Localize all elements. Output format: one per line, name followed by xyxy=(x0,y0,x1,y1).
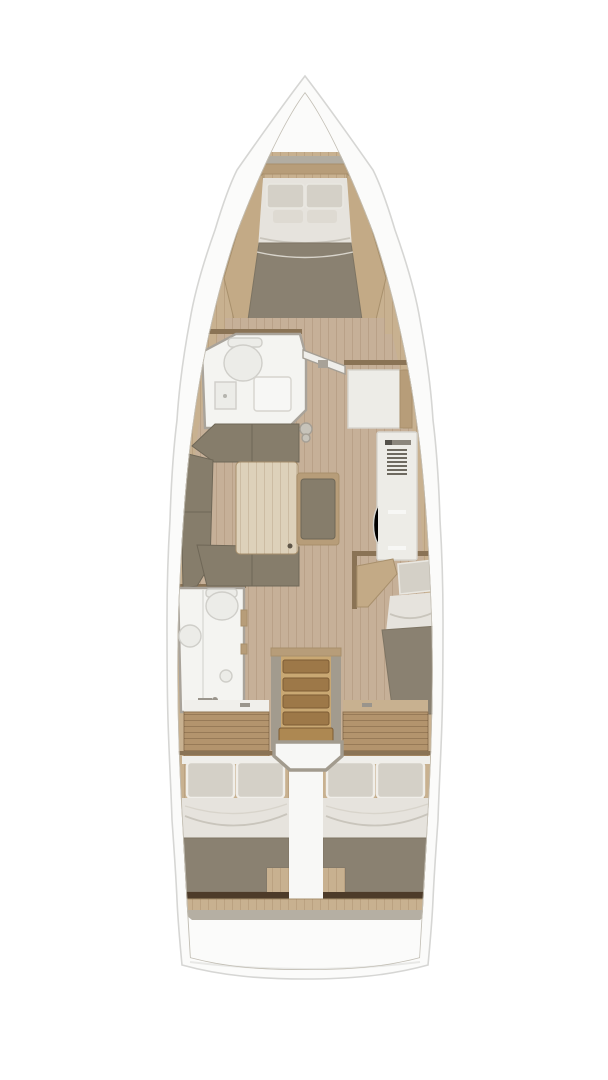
starboard-counter xyxy=(343,700,428,712)
port-notch-texture xyxy=(267,868,289,894)
port-cabinet-slats xyxy=(184,712,269,756)
yacht-floorplan xyxy=(0,0,608,1080)
stair-tread-3 xyxy=(283,695,329,708)
aft-head xyxy=(178,588,247,712)
vberth-small-pillow-right xyxy=(307,210,337,223)
vent-grille xyxy=(387,450,407,474)
wardrobe-unit xyxy=(348,370,412,428)
stair-tread-4 xyxy=(283,712,329,725)
stair-tread-2 xyxy=(283,678,329,691)
aft-head-drain xyxy=(220,670,232,682)
bow-shelf-wood xyxy=(254,164,356,174)
forward-head-door-bracket xyxy=(318,360,328,368)
aft-head-door-jamb-2 xyxy=(241,644,247,654)
starboard-counter-handle xyxy=(362,703,372,707)
port-pillow-1 xyxy=(187,762,234,798)
companionway-stairs xyxy=(271,648,341,750)
starboard-cabinet-slats xyxy=(343,712,428,756)
galley-body xyxy=(377,432,417,560)
port-counter-handle xyxy=(240,703,250,707)
stern xyxy=(178,899,434,920)
salon-table-texture xyxy=(236,462,298,554)
forward-head-sink-drain xyxy=(223,394,227,398)
bench-cushion xyxy=(301,479,335,539)
chart-bulkhead xyxy=(344,360,412,365)
interior xyxy=(150,92,460,970)
port-counter xyxy=(184,700,269,712)
salon-table-fitting xyxy=(288,544,293,549)
deck-fitting-inner xyxy=(302,434,310,442)
galley-unit xyxy=(374,432,418,560)
stair-top-lip xyxy=(271,648,341,656)
port-pillow-2 xyxy=(237,762,284,798)
starboard-pillow-1 xyxy=(327,762,374,798)
vberth-pillow-right xyxy=(306,184,343,208)
mid-cabin-door-jamb xyxy=(352,551,357,609)
galley-handle-tip xyxy=(385,440,392,445)
deck-fitting-outer xyxy=(300,423,312,435)
aft-cabin-starboard xyxy=(323,756,430,901)
forward-head-toilet xyxy=(224,345,262,381)
aft-head-toilet xyxy=(206,592,238,620)
forward-head-shower-tray xyxy=(254,377,291,411)
galley-notch-1 xyxy=(388,510,406,514)
vberth-pillow-left xyxy=(267,184,304,208)
galley-notch-2 xyxy=(388,546,406,550)
vberth-blanket xyxy=(248,243,362,320)
wardrobe-top xyxy=(348,370,402,428)
engine-box-chamfer xyxy=(274,742,342,770)
stair-tread-1 xyxy=(283,660,329,673)
aft-head-sink xyxy=(179,625,201,647)
vberth-small-pillow-left xyxy=(273,210,303,223)
starboard-notch-texture xyxy=(323,868,345,894)
starboard-pillow-2 xyxy=(377,762,424,798)
stern-gray-band xyxy=(180,910,432,920)
aft-cabins xyxy=(178,742,432,910)
aft-head-door-jamb-1 xyxy=(241,610,247,626)
